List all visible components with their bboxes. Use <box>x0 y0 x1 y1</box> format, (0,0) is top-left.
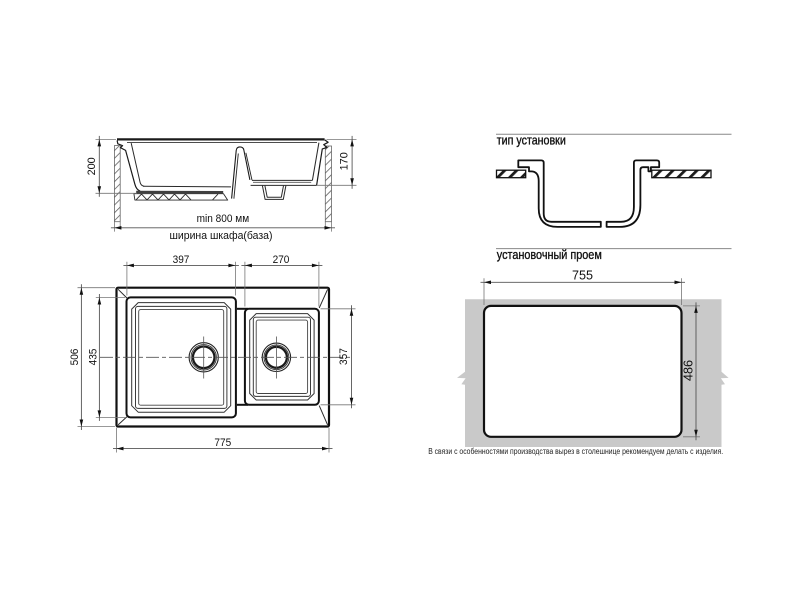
svg-text:установочный проем: установочный проем <box>497 247 602 262</box>
svg-text:775: 775 <box>214 437 231 449</box>
svg-text:ширина шкафа(база): ширина шкафа(база) <box>170 230 273 242</box>
svg-text:min 800 мм: min 800 мм <box>197 213 250 225</box>
svg-text:397: 397 <box>173 254 190 266</box>
svg-text:486: 486 <box>682 360 696 381</box>
svg-text:357: 357 <box>338 348 350 365</box>
svg-text:435: 435 <box>88 349 100 366</box>
svg-text:В связи с особенностями произв: В связи с особенностями производства выр… <box>428 447 723 456</box>
svg-text:тип установки: тип установки <box>497 132 566 147</box>
svg-text:200: 200 <box>86 157 98 175</box>
svg-text:506: 506 <box>69 349 81 366</box>
svg-text:270: 270 <box>273 254 290 266</box>
svg-text:755: 755 <box>572 269 593 283</box>
svg-text:170: 170 <box>338 152 350 170</box>
